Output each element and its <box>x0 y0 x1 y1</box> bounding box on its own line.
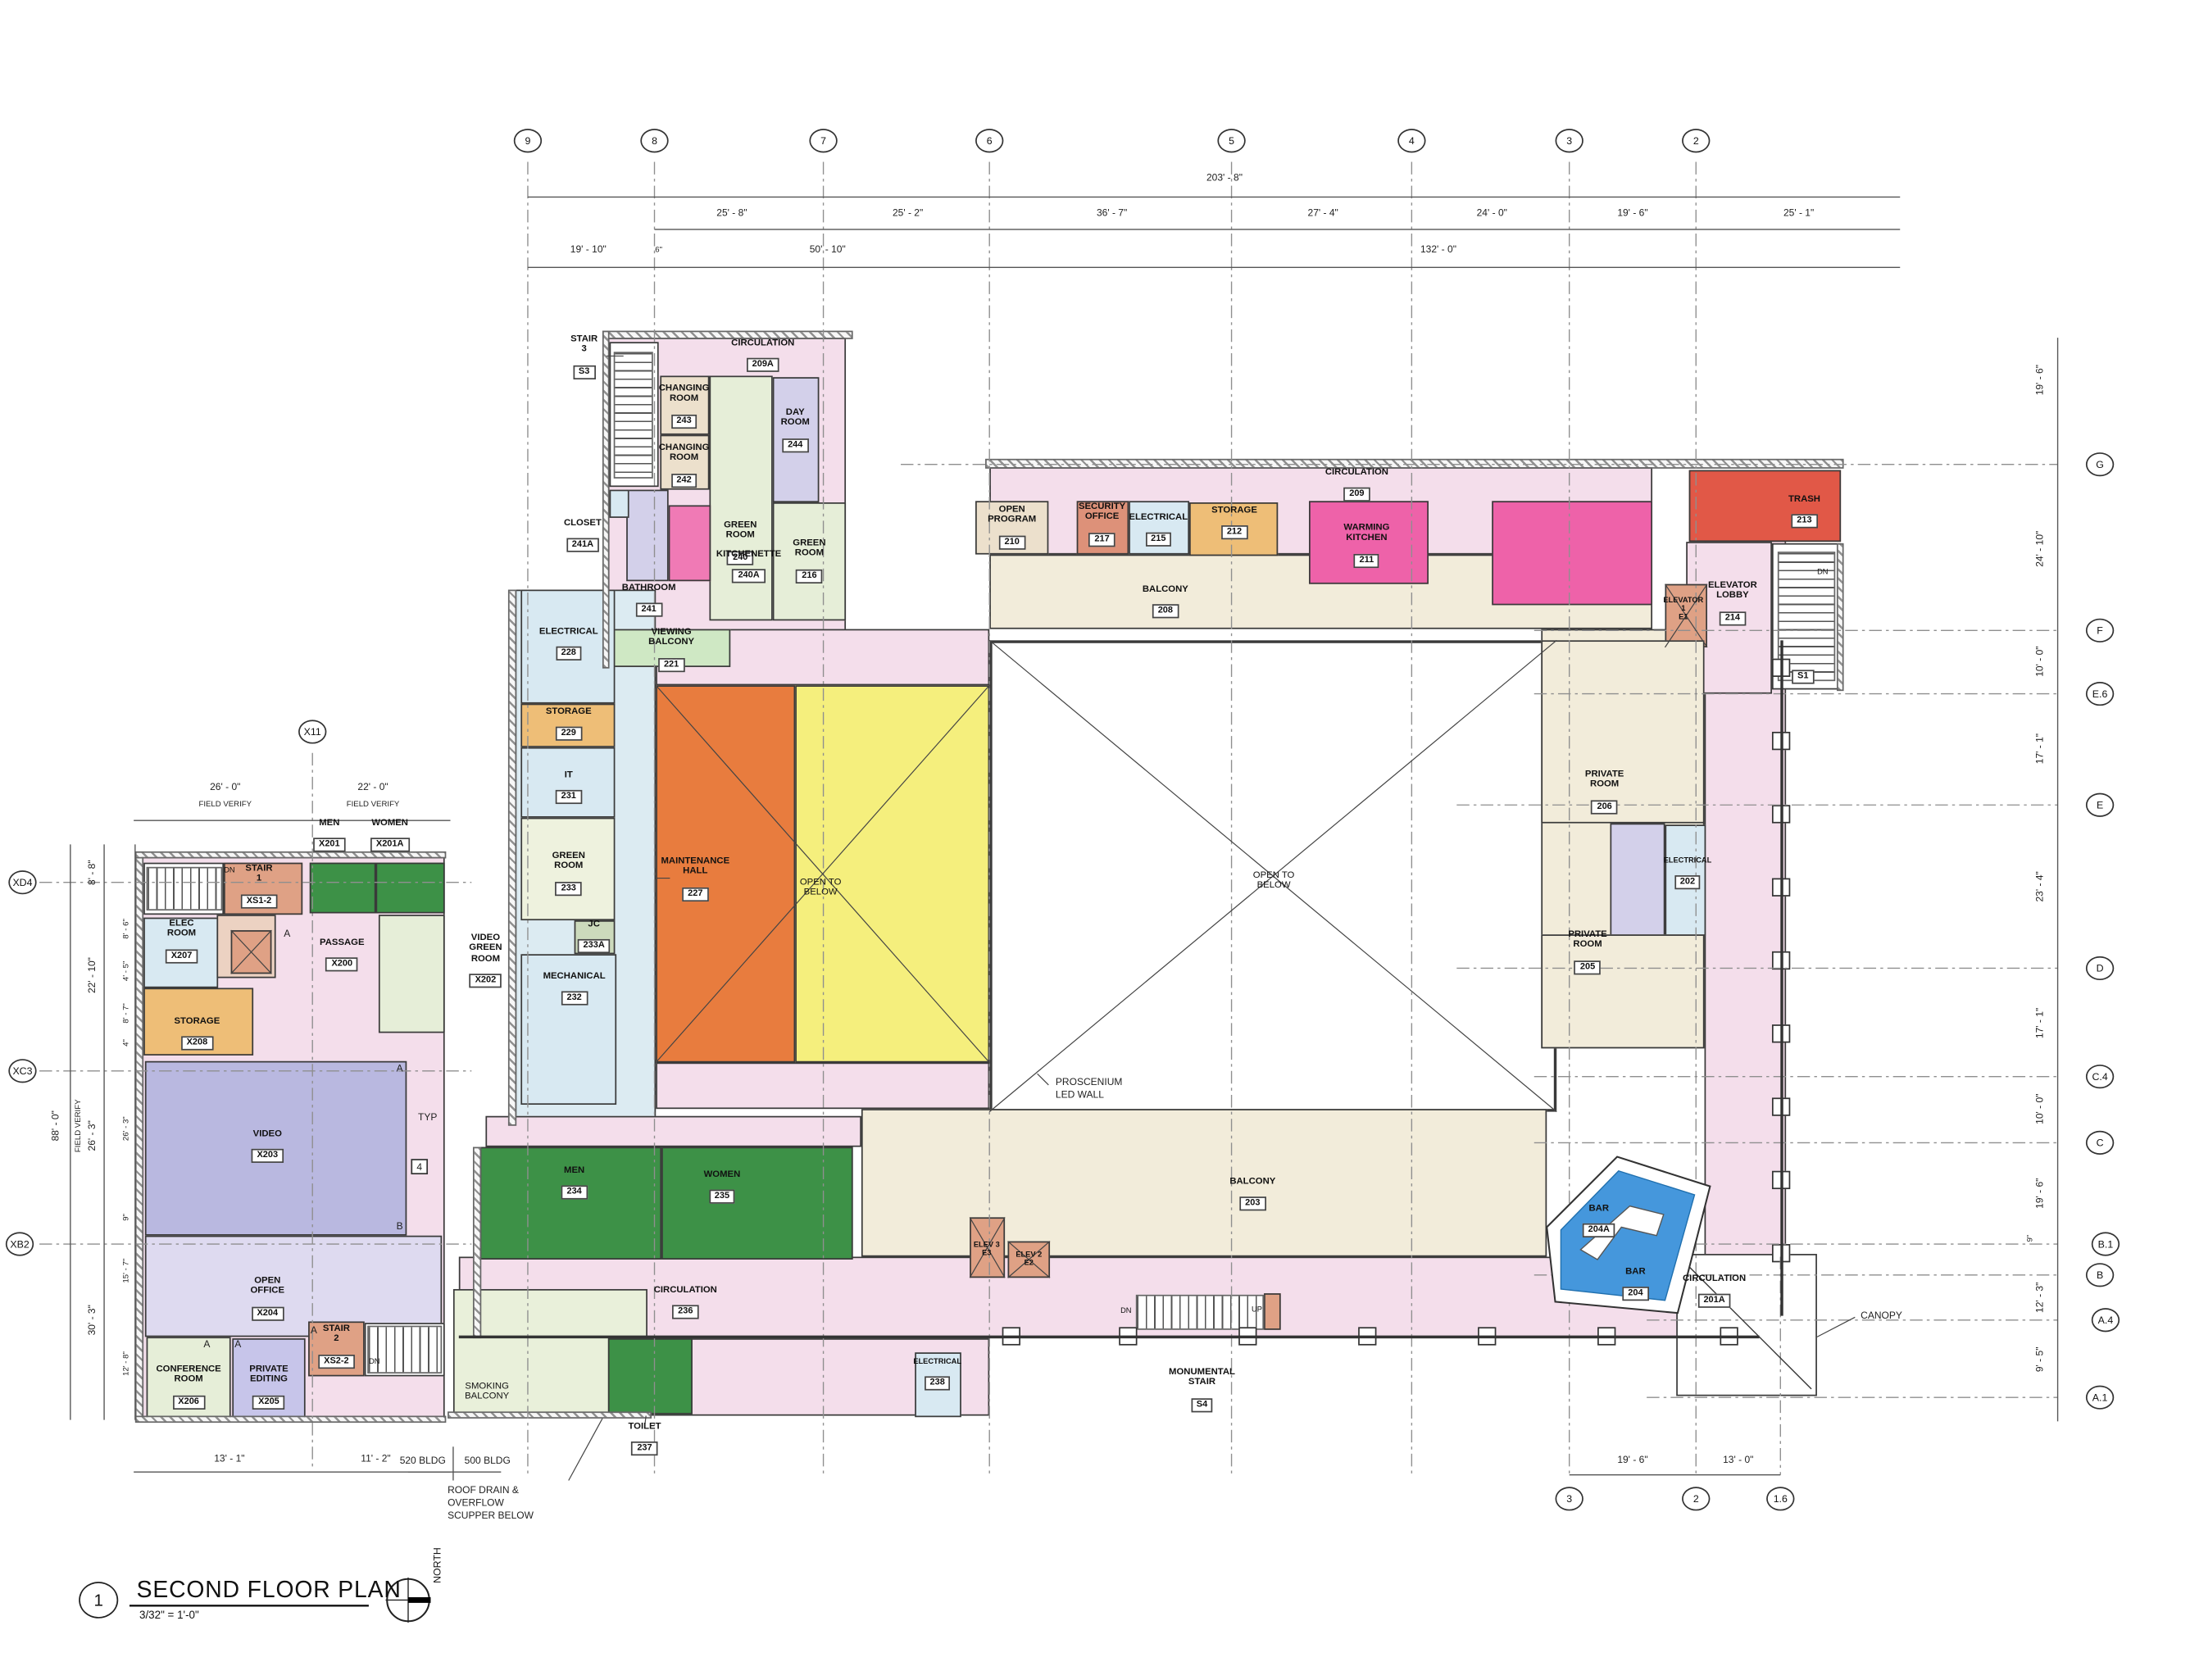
room-women-x201a <box>375 863 444 914</box>
label-text: CIRCULATION <box>731 338 794 349</box>
label-text: OPEN TO <box>1253 870 1295 881</box>
room-bathroom-241 <box>626 490 669 582</box>
label-241: BATHROOM241 <box>622 583 676 619</box>
dimension-10: 50' - 10" <box>810 246 846 256</box>
label-244: DAYROOM244 <box>781 407 810 453</box>
room-number: 227 <box>682 887 708 901</box>
label-up: UP <box>1252 1306 1262 1314</box>
label-227: MAINTENANCEHALL227 <box>661 856 729 902</box>
label-xs2-2: STAIR2XS2-2 <box>318 1324 354 1369</box>
label-text: DN <box>369 1358 379 1366</box>
exterior-wall-hatch-7 <box>135 1416 447 1423</box>
grid-bubble-x11: X11 <box>298 720 326 743</box>
label-text: CONFERENCE <box>156 1364 220 1375</box>
label-205: PRIVATEROOM205 <box>1568 929 1606 975</box>
label-text: BALCONY <box>648 638 694 648</box>
room-men-234 <box>480 1147 662 1260</box>
drawing-title: SECOND FLOOR PLAN <box>137 1578 402 1605</box>
label-text: ELECTRICAL <box>1129 513 1188 524</box>
label-221: VIEWINGBALCONY221 <box>648 627 694 673</box>
room-number: 215 <box>1145 533 1171 547</box>
room-men-x201 <box>310 863 376 914</box>
room-private-room-205 <box>1541 934 1704 1048</box>
dimension-3: 36' - 7" <box>1097 209 1127 219</box>
label-text: DAY <box>781 407 810 418</box>
dimension-24: 13' - 0" <box>1723 1455 1753 1465</box>
label-text: CIRCULATION <box>1683 1274 1746 1285</box>
label-text: MAINTENANCE <box>661 856 729 867</box>
label-text: ROOM <box>469 954 502 965</box>
room-number: X204 <box>252 1306 284 1320</box>
label-text: OFFICE <box>251 1287 285 1297</box>
label-text: CIRCULATION <box>654 1285 717 1296</box>
dimension-27: 22' - 0" <box>357 783 388 793</box>
room-toilet-237 <box>608 1338 693 1414</box>
room-number: 221 <box>658 658 684 672</box>
room-number: 234 <box>561 1186 588 1200</box>
room-maint-strip-bottom <box>656 1063 989 1110</box>
room-number: 214 <box>1720 611 1746 625</box>
label-x201a: WOMENX201A <box>370 818 409 854</box>
dimension-26: FIELD VERIFY <box>198 801 252 809</box>
detail-tag-a-4: A <box>234 1341 241 1351</box>
room-closet-241a <box>610 490 629 518</box>
label-211: WARMINGKITCHEN211 <box>1343 523 1389 569</box>
room-number: X201A <box>370 838 409 852</box>
label-text: TRASH <box>1788 494 1820 505</box>
room-number: 240A <box>733 570 766 583</box>
label-241a: CLOSET241A <box>564 518 602 554</box>
wall-pilaster-6 <box>1720 1327 1738 1345</box>
room-number: 233 <box>556 882 582 896</box>
dimension-31: 8' - 8" <box>88 860 98 885</box>
dimension-30: FIELD VERIFY <box>75 1099 83 1152</box>
label-text: WOMEN <box>370 818 409 829</box>
grid-bubble-g: G <box>2086 452 2114 476</box>
label-open-to: OPEN TOBELOW <box>800 878 842 898</box>
label-text: PRIVATE <box>1568 929 1606 940</box>
wall-pilaster-4 <box>1478 1327 1496 1345</box>
room-number: 212 <box>1221 526 1247 540</box>
room-balcony-203 <box>861 1109 1547 1256</box>
label-text: CHANGING <box>659 384 710 394</box>
label-233: GREENROOM233 <box>552 851 585 897</box>
label-216: GREENROOM216 <box>793 538 825 584</box>
room-number: 242 <box>671 474 697 488</box>
label-text: MEN <box>561 1165 588 1176</box>
note-5: TYP <box>418 1113 437 1125</box>
label-text: OPEN <box>251 1276 285 1287</box>
dimension-20: 9" <box>2027 1235 2035 1242</box>
note-3: 500 BLDG <box>465 1456 511 1469</box>
label-text: E3 <box>974 1250 1000 1258</box>
label-237: TOILET237 <box>628 1422 661 1458</box>
label-text: E2 <box>1015 1260 1042 1268</box>
room-number: 233A <box>578 940 611 954</box>
note-4: CANOPY <box>1861 1311 1902 1324</box>
label-228: ELECTRICAL228 <box>539 627 598 663</box>
label-240a: KITCHENETTE240A <box>716 549 781 585</box>
label-text: BAR <box>1622 1267 1648 1278</box>
room-number: 206 <box>1592 800 1618 814</box>
room-number: 201A <box>1698 1294 1731 1308</box>
label-elev-3: ELEV 3E3 <box>974 1242 1000 1259</box>
dimension-22: 9' - 5" <box>2036 1347 2046 1373</box>
room-number: X205 <box>252 1395 284 1409</box>
room-number: S3 <box>573 365 595 379</box>
label-text: BALCONY <box>1229 1177 1275 1187</box>
label-208: BALCONY208 <box>1143 584 1188 620</box>
grid-bubble-xd4: XD4 <box>8 870 36 894</box>
dimension-43: 13' - 1" <box>214 1455 244 1464</box>
drawing-scale: 3/32" = 1'-0" <box>139 1609 199 1621</box>
grid-bubble-xb2: XB2 <box>6 1232 34 1255</box>
room-monumental-stair-landing <box>1264 1293 1281 1330</box>
label-238: ELECTRICAL238 <box>913 1358 961 1392</box>
label-text: WOMEN <box>704 1170 741 1181</box>
label-234: MEN234 <box>561 1165 588 1201</box>
room-number: XS2-2 <box>318 1355 354 1369</box>
label-text: PASSAGE <box>320 938 365 948</box>
label-xs1-2: STAIR1XS1-2 <box>241 864 277 910</box>
wall-pilaster-2 <box>1238 1327 1256 1345</box>
label-text: MECHANICAL <box>543 971 606 982</box>
label-x203: VIDEOX203 <box>252 1129 284 1165</box>
dimension-0: 203' - 8" <box>1206 174 1243 184</box>
wall-pilaster-13 <box>1772 1097 1790 1115</box>
label-text: GREEN <box>469 943 502 954</box>
dimension-37: 8' - 7" <box>122 1003 130 1023</box>
room-number: 228 <box>556 647 582 661</box>
label-text: STAIR <box>318 1324 354 1334</box>
label-s3: STAIR3S3 <box>570 334 597 380</box>
label-text: BAR <box>1583 1204 1615 1215</box>
label-text: ROOM <box>156 1375 220 1386</box>
grid-bubble-1-6: 1.6 <box>1766 1487 1794 1510</box>
label-text: JC <box>578 919 611 930</box>
dimension-6: 19' - 6" <box>1617 209 1647 219</box>
label-text: ROOM <box>1585 779 1624 790</box>
label-elevator: ELEVATOR1E1 <box>1663 597 1703 622</box>
label-text: ELEV 2 <box>1015 1251 1042 1260</box>
label-236: CIRCULATION236 <box>654 1285 717 1321</box>
room-number: S4 <box>1191 1398 1213 1412</box>
room-number: 241 <box>636 603 662 617</box>
dimension-1: 25' - 8" <box>716 209 747 219</box>
label-text: SMOKING <box>465 1382 509 1392</box>
wall-pilaster-7 <box>1772 659 1790 677</box>
wall-pilaster-0 <box>1002 1327 1020 1345</box>
room-number: X206 <box>172 1395 204 1409</box>
label-text: ROOM <box>659 394 710 405</box>
room-number: 231 <box>556 791 582 805</box>
dimension-11: 132' - 0" <box>1420 246 1456 256</box>
room-circulation-upper <box>485 1116 861 1147</box>
label-text: ELECTRICAL <box>1664 857 1712 865</box>
label-text: ROOM <box>781 418 810 429</box>
room-number: 210 <box>999 535 1025 549</box>
label-text: GREEN <box>552 851 585 861</box>
wall-pilaster-9 <box>1772 805 1790 823</box>
label-text: ELECTRICAL <box>913 1358 961 1366</box>
room-women-235 <box>661 1147 853 1260</box>
grid-bubble-a-1: A.1 <box>2086 1386 2114 1410</box>
room-number: X208 <box>181 1037 213 1051</box>
label-text: GREEN <box>793 538 825 549</box>
grid-bubble-2: 2 <box>1682 129 1710 152</box>
label-203: BALCONY203 <box>1229 1177 1275 1213</box>
label-x200: PASSAGEX200 <box>320 938 365 974</box>
label-215: ELECTRICAL215 <box>1129 513 1188 549</box>
dimension-35: 8' - 6" <box>122 919 130 938</box>
label-text: BALCONY <box>1143 584 1188 595</box>
detail-tag-b-2: B <box>397 1222 403 1232</box>
label-text: E1 <box>1663 614 1703 622</box>
label-text: LOBBY <box>1708 591 1757 602</box>
label-text: IT <box>556 770 582 781</box>
label-text: CLOSET <box>564 518 602 529</box>
room-number: X203 <box>252 1149 284 1163</box>
detail-tag-4-6: 4 <box>411 1159 428 1174</box>
wall-pilaster-10 <box>1772 879 1790 897</box>
detail-tag-a-0: A <box>284 929 290 939</box>
dimension-18: 10' - 0" <box>2036 1094 2046 1124</box>
dimension-9: 6" <box>655 247 662 255</box>
label-text: VIDEO <box>469 933 502 943</box>
label-213: TRASH213 <box>1788 494 1820 530</box>
label-text: HALL <box>661 867 729 878</box>
north-arrow-label: NORTH <box>430 1547 443 1583</box>
room-number: 237 <box>631 1442 657 1456</box>
label-text: ELECTRICAL <box>539 627 598 638</box>
label-text: OFFICE <box>1079 512 1125 523</box>
label-214: ELEVATORLOBBY214 <box>1708 581 1757 627</box>
wall-pilaster-11 <box>1772 951 1790 969</box>
label-text: GREEN <box>724 520 757 531</box>
room-number: 202 <box>1674 875 1701 889</box>
dimension-41: 15' - 7" <box>122 1259 130 1283</box>
room-elev-x-shaft <box>231 930 272 974</box>
room-number: 243 <box>671 415 697 429</box>
stair-1-treads <box>147 867 223 910</box>
label-text: PRIVATE <box>1585 770 1624 780</box>
label-text: STORAGE <box>1211 506 1257 516</box>
label-text: 1 <box>241 874 277 884</box>
wall-pilaster-5 <box>1597 1327 1615 1345</box>
dimension-17: 17' - 1" <box>2036 1008 2046 1038</box>
label-text: OPEN TO <box>800 878 842 888</box>
wall-pilaster-3 <box>1358 1327 1376 1345</box>
room-number: 204A <box>1583 1224 1615 1237</box>
label-x205: PRIVATEEDITINGX205 <box>249 1364 288 1410</box>
label-229: STORAGE229 <box>546 707 592 743</box>
label-text: DN <box>224 867 234 875</box>
wall-pilaster-12 <box>1772 1024 1790 1042</box>
label-text: TOILET <box>628 1422 661 1433</box>
label-204a: BAR204A <box>1583 1204 1615 1240</box>
label-233a: JC233A <box>578 919 611 956</box>
label-dn: DN <box>1817 569 1828 577</box>
label-204: BAR204 <box>1622 1267 1648 1303</box>
label-201a: CIRCULATION201A <box>1683 1274 1746 1310</box>
dimension-13: 24' - 10" <box>2036 531 2046 567</box>
detail-tag-a-5: A <box>311 1326 317 1336</box>
label-242: CHANGINGROOM242 <box>659 443 710 488</box>
label-210: OPENPROGRAM210 <box>988 505 1036 551</box>
grid-bubble-3: 3 <box>1556 1487 1583 1510</box>
room-number: 238 <box>925 1376 951 1390</box>
dimension-25: 26' - 0" <box>210 783 240 793</box>
room-number: X207 <box>166 949 198 963</box>
room-number: 213 <box>1791 515 1817 529</box>
dimension-21: 12' - 3" <box>2036 1283 2046 1313</box>
label-202: ELECTRICAL202 <box>1664 857 1712 891</box>
label-x208: STORAGEX208 <box>175 1016 220 1052</box>
label-text: STORAGE <box>175 1016 220 1027</box>
label-text: ELEVATOR <box>1708 581 1757 592</box>
room-number: 235 <box>709 1190 735 1204</box>
dimension-7: 25' - 1" <box>1783 209 1814 219</box>
wall-pilaster-8 <box>1772 732 1790 750</box>
dimension-4: 27' - 4" <box>1308 209 1338 219</box>
grid-bubble-6: 6 <box>975 129 1003 152</box>
dimension-8: 19' - 10" <box>570 246 607 256</box>
label-text: ROOM <box>552 861 585 872</box>
note-1: ROOF DRAIN &OVERFLOWSCUPPER BELOW <box>448 1486 534 1523</box>
room-number: 203 <box>1239 1197 1265 1211</box>
label-206: PRIVATEROOM206 <box>1585 770 1624 815</box>
floor-plan-canvas: 1 SECOND FLOOR PLAN 3/32" = 1'-0" NORTH … <box>0 0 2190 1679</box>
label-text: ELEC <box>166 919 198 929</box>
grid-bubble-c-4: C.4 <box>2086 1065 2114 1088</box>
room-number: 244 <box>782 438 808 452</box>
label-text: STAIR <box>570 334 597 345</box>
dimension-28: FIELD VERIFY <box>347 801 400 809</box>
label-232: MECHANICAL232 <box>543 971 606 1007</box>
label-235: WOMEN235 <box>704 1170 741 1206</box>
grid-bubble-c: C <box>2086 1131 2114 1155</box>
label-text: OPEN <box>988 505 1036 515</box>
grid-bubble-5: 5 <box>1217 129 1245 152</box>
grid-bubble-e: E <box>2086 793 2114 817</box>
label-dn: DN <box>224 867 234 875</box>
label-text: VIDEO <box>252 1129 284 1140</box>
grid-bubble-e-6: E.6 <box>2086 682 2114 706</box>
grid-bubble-xc3: XC3 <box>8 1059 36 1083</box>
room-private-restrooms <box>1610 824 1665 936</box>
exterior-wall-hatch-5 <box>135 851 143 1421</box>
detail-tag-a-1: A <box>397 1065 403 1074</box>
label-text: MEN <box>313 818 345 829</box>
label-209a: CIRCULATION209A <box>731 338 794 375</box>
room-number: 217 <box>1089 533 1115 547</box>
label-231: IT231 <box>556 770 582 806</box>
label-text: VIEWING <box>648 627 694 638</box>
room-number: 236 <box>672 1305 698 1319</box>
label-text: KITCHENETTE <box>716 549 781 560</box>
label-243: CHANGINGROOM243 <box>659 384 710 429</box>
room-number: 209A <box>747 358 779 372</box>
grid-bubble-d: D <box>2086 956 2114 980</box>
label-text: CHANGING <box>659 443 710 453</box>
label-x201: MENX201 <box>313 818 345 854</box>
room-number: 208 <box>1152 605 1179 619</box>
dimension-14: 10' - 0" <box>2036 646 2046 676</box>
room-number: XS1-2 <box>241 894 277 908</box>
exterior-wall-hatch-4 <box>473 1147 481 1339</box>
label-text: DN <box>1120 1307 1131 1315</box>
label-text: PRIVATE <box>249 1364 288 1375</box>
label-s1: S1 <box>1792 660 1814 685</box>
grid-bubble-b-1: B.1 <box>2092 1232 2120 1255</box>
dimension-34: 30' - 3" <box>88 1305 98 1335</box>
label-text: STAIR <box>241 864 277 874</box>
grid-bubble-b: B <box>2086 1263 2114 1287</box>
label-text: KITCHEN <box>1343 534 1389 544</box>
room-number: 205 <box>1574 960 1601 974</box>
stair-3-treads <box>614 352 653 479</box>
label-text: 1 <box>1663 605 1703 613</box>
grid-bubble-3: 3 <box>1556 129 1583 152</box>
label-text: ELEVATOR <box>1663 597 1703 605</box>
dimension-42: 12' - 8" <box>122 1351 130 1376</box>
room-number: 216 <box>796 569 822 583</box>
label-text: ROOM <box>1568 940 1606 951</box>
monumental-stair-treads <box>1136 1295 1264 1330</box>
label-text: CIRCULATION <box>1325 468 1388 479</box>
label-x206: CONFERENCEROOMX206 <box>156 1364 220 1410</box>
label-s4: MONUMENTALSTAIRS4 <box>1169 1367 1235 1413</box>
label-text: UP <box>1252 1306 1262 1314</box>
grid-bubble-a-4: A.4 <box>2092 1308 2120 1332</box>
label-text: ROOM <box>166 929 198 939</box>
exterior-wall-hatch-8 <box>1837 543 1844 691</box>
room-number: 241A <box>566 538 599 552</box>
label-open-to: OPEN TOBELOW <box>1253 870 1295 891</box>
label-smoking: SMOKINGBALCONY <box>465 1382 509 1402</box>
room-number: 209 <box>1343 488 1370 502</box>
label-text: MONUMENTAL <box>1169 1367 1235 1378</box>
dimension-15: 17' - 1" <box>2036 733 2046 764</box>
label-text: EDITING <box>249 1375 288 1386</box>
dimension-19: 19' - 6" <box>2036 1178 2046 1209</box>
dimension-23: 19' - 6" <box>1617 1455 1647 1465</box>
wall-pilaster-14 <box>1772 1171 1790 1189</box>
dimension-32: 22' - 10" <box>88 957 98 993</box>
label-text: ELEV 3 <box>974 1242 1000 1250</box>
room-number: X201 <box>313 838 345 852</box>
drawing-number-bubble: 1 <box>79 1582 118 1619</box>
label-text: ROOM <box>724 530 757 541</box>
label-dn: DN <box>1120 1307 1131 1315</box>
dimension-39: 26' - 3" <box>122 1116 130 1141</box>
label-text: 2 <box>318 1334 354 1345</box>
room-open-office-x204 <box>145 1236 442 1337</box>
note-2: 520 BLDG <box>400 1456 446 1469</box>
room-kitchenette-240a <box>669 505 711 581</box>
dimension-16: 23' - 4" <box>2036 871 2046 901</box>
exterior-wall-hatch-2 <box>985 459 1844 469</box>
dimension-5: 24' - 0" <box>1477 209 1507 219</box>
label-x207: ELECROOMX207 <box>166 919 198 965</box>
dimension-44: 11' - 2" <box>361 1455 390 1464</box>
room-number: 211 <box>1354 554 1379 568</box>
grid-bubble-f: F <box>2086 619 2114 642</box>
label-217: SECURITYOFFICE217 <box>1079 502 1125 547</box>
label-text: 3 <box>570 345 597 356</box>
label-text: ROOM <box>659 453 710 464</box>
label-text: DN <box>1817 569 1828 577</box>
